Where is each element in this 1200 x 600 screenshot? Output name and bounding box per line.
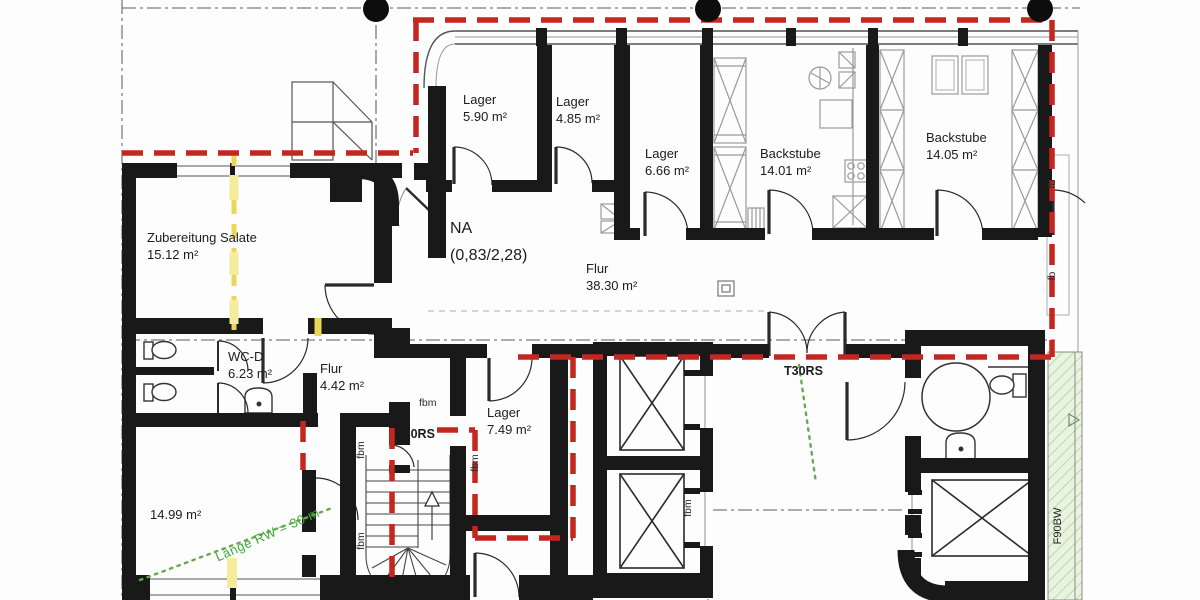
ramp-symbol	[292, 82, 372, 160]
fire-door-label-t30rs-corridor: T30RS	[784, 363, 823, 379]
window-band-top	[424, 31, 1078, 600]
fb-label-vertical: fb	[1046, 164, 1058, 204]
toilet-icon	[144, 342, 176, 360]
stair-direction-arrow-icon	[425, 492, 439, 540]
toilet-icon	[144, 384, 176, 402]
floor-plan: Lager5.90 m² Lager4.85 m² Lager6.66 m² B…	[0, 0, 1200, 600]
room-label-wc-d: WC-D6.23 m²	[228, 349, 272, 383]
service-shaft	[912, 480, 1032, 558]
washbasin-icon	[946, 433, 975, 460]
fbm-label-vertical: fbm	[682, 488, 694, 528]
elevator-car-icon	[620, 474, 684, 568]
walls	[122, 45, 1052, 600]
room-label-backstube-1401: Backstube14.01 m²	[760, 146, 821, 180]
fbm-label-vertical: fbm	[355, 521, 367, 561]
room-label-flur-main: Flur38.30 m²	[586, 261, 637, 295]
fbm-label: fbm	[419, 397, 437, 409]
door-arc-icon	[556, 147, 592, 184]
room-label-lager-666: Lager6.66 m²	[645, 146, 689, 180]
fb-label-vertical: fb	[1046, 256, 1058, 296]
room-label-lager-485: Lager4.85 m²	[556, 94, 600, 128]
fbm-label-vertical: fbm	[355, 430, 367, 470]
washbasin-icon	[245, 388, 272, 413]
fire-door-label-t30rs-stair: T30RS	[396, 426, 435, 442]
column-icon	[363, 0, 1053, 22]
door-arc-icon	[454, 147, 492, 185]
room-label-lager-590: Lager5.90 m²	[463, 92, 507, 126]
double-door-arc-icon	[769, 312, 845, 356]
escape-hatch-na	[398, 188, 432, 226]
door-arc-icon	[847, 382, 905, 440]
turning-circle	[922, 363, 990, 431]
na-dimension-label: (0,83/2,28)	[450, 246, 527, 267]
door-arc-icon	[475, 553, 519, 597]
na-label: NA	[450, 219, 472, 240]
bakery-equipment	[601, 48, 1069, 315]
door-arc-icon	[769, 190, 813, 234]
room-label-backstube-1405: Backstube14.05 m²	[926, 130, 987, 164]
f90bw-firewall-label: F90BW	[1052, 496, 1064, 556]
elevator-car-icon	[620, 356, 684, 450]
fbm-label-vertical: fbm	[469, 443, 481, 483]
room-label-flur-small: Flur4.42 m²	[320, 361, 364, 395]
room-label-lager-749: Lager7.49 m²	[487, 405, 531, 439]
door-arc-icon	[937, 190, 983, 236]
firewall-hatch-strip	[1048, 352, 1082, 600]
door-arc-icon	[489, 358, 532, 401]
door-arc-icon	[645, 192, 688, 236]
room-label-sw: 14.99 m²	[150, 507, 201, 524]
room-label-zubereitung: Zubereitung Salate15.12 m²	[147, 230, 257, 264]
door-arc-icon	[218, 383, 248, 413]
toilet-icon	[988, 367, 1028, 397]
